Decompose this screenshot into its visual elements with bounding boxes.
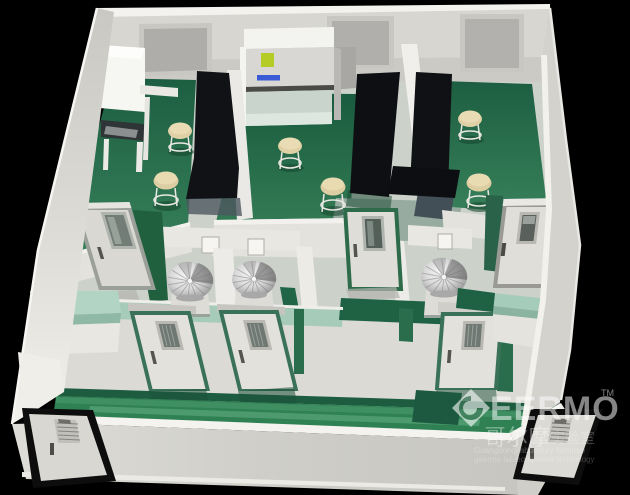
svg-text:geermo lab equipment technolog: geermo lab equipment technology xyxy=(474,455,595,464)
svg-text:TM: TM xyxy=(601,388,614,398)
svg-text:Guangdong laboratory furniture: Guangdong laboratory furniture xyxy=(474,446,586,455)
svg-text:实验室: 实验室 xyxy=(550,430,595,447)
